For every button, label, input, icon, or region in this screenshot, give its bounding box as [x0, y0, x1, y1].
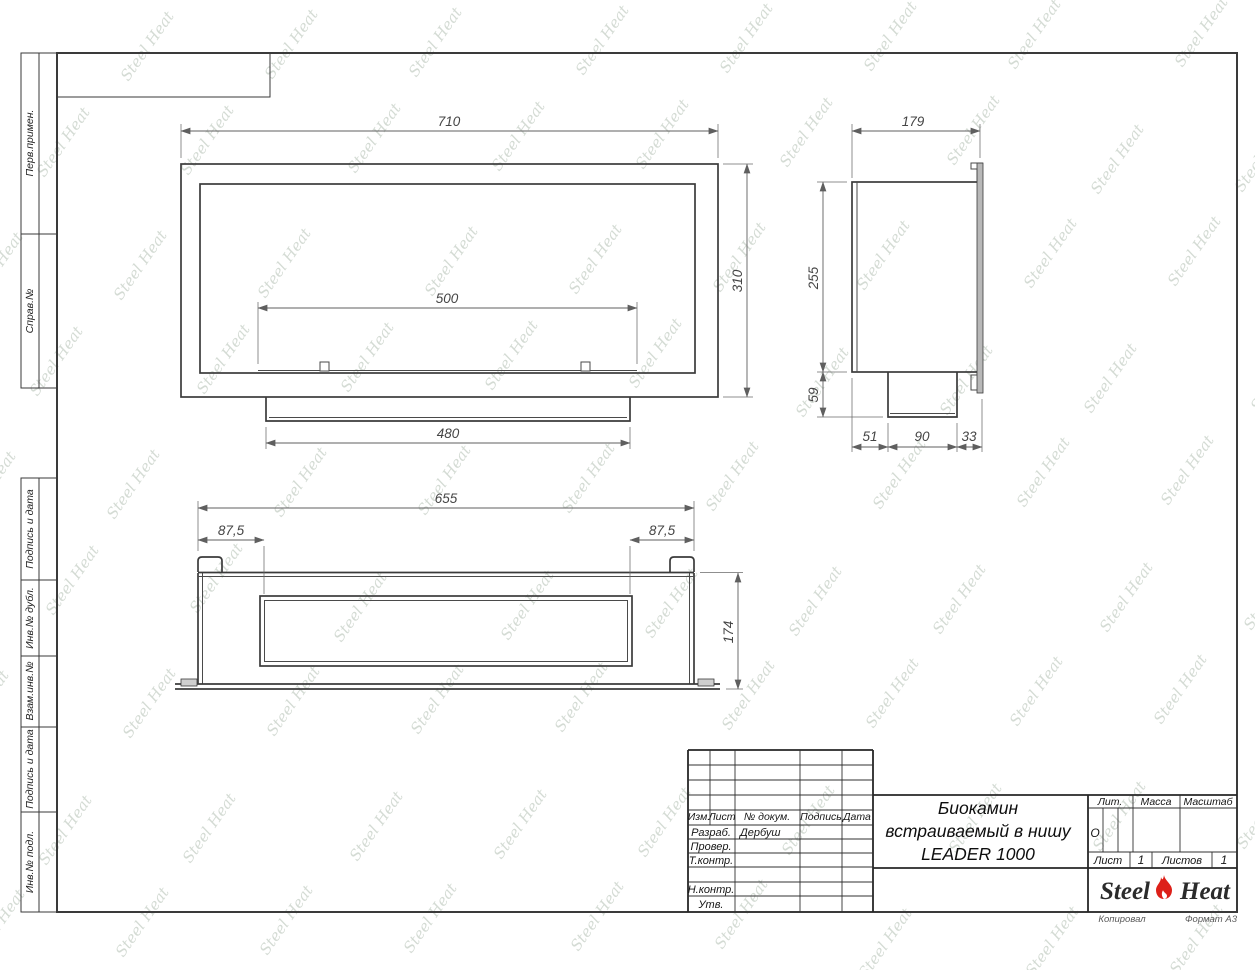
tb-header-list: Лист [707, 811, 735, 823]
steelheat-logo: Steel Heat [1100, 875, 1231, 905]
bottom-foot-right [698, 679, 714, 686]
dim-front-width: 710 [438, 114, 461, 129]
dim-side-51: 51 [862, 429, 877, 444]
bottom-right-clip [670, 557, 694, 572]
margin-label-podpis-data-2: Подпись и дата [24, 729, 36, 809]
dim-front-height: 310 [730, 269, 745, 292]
dim-bottom-offset-left: 87,5 [218, 523, 245, 538]
tb-row-utv: Утв. [698, 899, 724, 911]
bottom-burner-box [260, 596, 632, 666]
margin-band-upper [21, 53, 57, 388]
front-burner-tab-left [320, 362, 329, 371]
tb-lit-value: О [1090, 826, 1099, 840]
doc-title-line1: Биокамин [938, 798, 1019, 818]
footer-kopiroval: Копировал [1098, 914, 1146, 925]
footer-format: Формат А3 [1185, 914, 1238, 925]
front-burner-tab-right [581, 362, 590, 371]
dim-bottom-width: 655 [435, 491, 458, 506]
dim-front-protrusion: 480 [437, 426, 460, 441]
margin-label-vzam-inv: Взам.инв.№ [24, 661, 36, 720]
drawing-sheet: Steel HeatSteel HeatSteel HeatSteel Heat… [0, 0, 1255, 970]
side-bottom-protrusion [888, 372, 957, 417]
margin-label-inv-dubl: Инв.№ дубл. [24, 587, 36, 649]
side-flange-bottom-hook [971, 375, 977, 390]
tb-header-data: Дата [842, 811, 871, 823]
logo-text-heat: Heat [1179, 878, 1231, 905]
doc-title-line2: встраиваемый в нишу [885, 821, 1071, 841]
bottom-left-clip [198, 557, 222, 572]
dim-side-protrusion-height: 59 [806, 387, 821, 403]
title-block: Изм. Лист № докум. Подпись Дата Разраб. … [688, 750, 1237, 912]
tb-listov-label: Листов [1161, 855, 1202, 867]
corner-doc-box [57, 53, 270, 97]
dim-side-body-height: 255 [806, 266, 821, 290]
tb-list-value: 1 [1138, 853, 1145, 867]
sheet-frame: Перв.примен. Справ.№ Подпись и дата Инв.… [21, 53, 1237, 912]
logo-text-steel: Steel [1100, 878, 1150, 905]
margin-label-perv-primen: Перв.примен. [24, 110, 36, 177]
side-body [852, 182, 978, 372]
doc-title-line3: LEADER 1000 [921, 844, 1035, 864]
dim-bottom-height: 174 [721, 621, 736, 644]
dim-front-burner: 500 [436, 291, 459, 306]
front-outer-body [181, 164, 718, 397]
dim-side-depth: 179 [902, 114, 925, 129]
technical-drawing: Перв.примен. Справ.№ Подпись и дата Инв.… [0, 0, 1255, 970]
margin-labels: Перв.примен. Справ.№ Подпись и дата Инв.… [24, 110, 36, 894]
flame-icon [1156, 875, 1172, 899]
tb-masshtab-label: Масштаб [1183, 796, 1233, 808]
dim-side-33: 33 [961, 429, 977, 444]
side-mounting-flange [977, 163, 983, 393]
tb-list-label: Лист [1093, 855, 1122, 867]
front-opening [200, 184, 695, 373]
dim-side-90: 90 [914, 429, 930, 444]
tb-header-podpis: Подпись [800, 811, 842, 823]
tb-massa-label: Масса [1140, 796, 1171, 808]
tb-listov-value: 1 [1221, 853, 1228, 867]
margin-label-inv-podl: Инв.№ подл. [24, 831, 36, 893]
tb-header-ndoc: № докум. [744, 811, 790, 823]
front-view: 710 310 500 480 [181, 114, 753, 449]
tb-row-tkontr: Т.контр. [689, 855, 733, 867]
dim-bottom-offset-right: 87,5 [649, 523, 676, 538]
tb-header-izm: Изм. [688, 811, 710, 823]
tb-row-nkontr: Н.контр. [688, 884, 735, 896]
tb-row-razrab: Разраб. [691, 827, 731, 839]
margin-label-podpis-data-1: Подпись и дата [24, 489, 36, 569]
bottom-view: 655 87,5 87,5 174 [175, 491, 743, 689]
side-view: 179 255 59 51 90 33 [806, 114, 983, 452]
bottom-foot-left [181, 679, 197, 686]
tb-lit-label: Лит. [1097, 796, 1123, 808]
tb-row-razrab-value: Дербуш [738, 827, 781, 839]
tb-row-prover: Провер. [691, 841, 732, 853]
margin-label-sprav-n: Справ.№ [24, 289, 36, 334]
